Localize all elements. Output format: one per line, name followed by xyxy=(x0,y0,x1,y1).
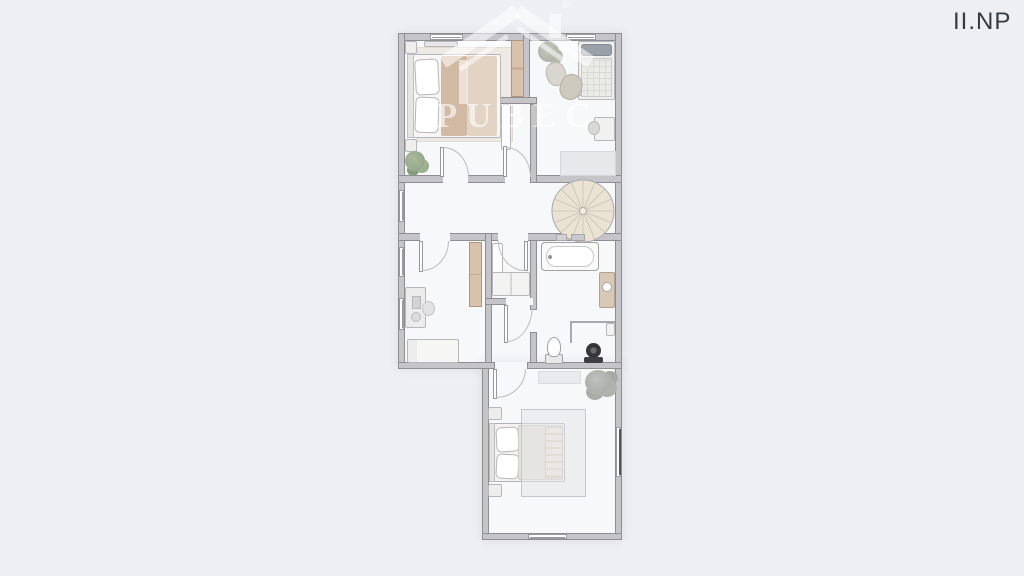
wall-right-upper xyxy=(615,33,622,368)
chair xyxy=(422,301,435,316)
pedestal-fan-base xyxy=(584,357,603,363)
bed-headboard xyxy=(489,423,495,482)
bed-blanket xyxy=(441,56,467,136)
bed-pillow xyxy=(414,97,439,134)
wall-bedroom4-left xyxy=(482,368,489,540)
registered-mark: ® xyxy=(562,0,569,11)
pedestal-fan-head xyxy=(586,343,601,358)
door-opening xyxy=(420,233,450,241)
wall-midsection-bottom-left xyxy=(398,362,495,369)
wall-divider-lower xyxy=(530,104,537,183)
wall-divider-jog xyxy=(500,97,537,104)
wardrobe xyxy=(511,40,524,97)
corner-cabinet xyxy=(606,323,615,336)
wall-midsection-bottom-right xyxy=(527,362,622,369)
window xyxy=(430,34,463,40)
sink-basin xyxy=(602,282,612,292)
toilet-bowl xyxy=(547,337,561,357)
window xyxy=(399,298,404,330)
door-opening xyxy=(498,233,528,241)
bed-blanket xyxy=(467,56,497,136)
bed-pillow xyxy=(414,58,440,95)
floor-level-label: II.NP xyxy=(953,8,1011,36)
floor-plan-page: { "page": { "background_color": "#edeff2… xyxy=(0,0,1024,576)
nightstand xyxy=(488,407,502,420)
door-opening xyxy=(506,298,533,305)
bed-headboard xyxy=(407,54,414,138)
rug xyxy=(560,151,616,176)
window xyxy=(616,427,621,477)
corner-rail xyxy=(570,321,572,343)
wall-bedroom-divider xyxy=(523,33,530,104)
window xyxy=(399,190,404,222)
bathtub xyxy=(541,242,599,271)
doormat xyxy=(538,371,581,384)
bed-pillow xyxy=(495,426,519,452)
window xyxy=(566,34,596,40)
wall-shelf xyxy=(424,41,458,47)
bed-blanket xyxy=(581,58,612,97)
plant xyxy=(585,370,611,394)
window xyxy=(528,534,567,539)
daybed xyxy=(407,339,459,363)
chair xyxy=(588,121,600,135)
nightstand xyxy=(488,484,502,497)
wall-fixture xyxy=(556,234,567,241)
nightstand xyxy=(405,41,417,54)
window xyxy=(399,247,404,277)
plant xyxy=(538,41,559,62)
bed-pillow xyxy=(495,453,519,479)
bench xyxy=(492,272,530,296)
plant xyxy=(405,151,425,171)
wardrobe xyxy=(469,242,482,307)
shelf-cabinet xyxy=(501,104,511,150)
bed-pillow xyxy=(581,44,612,56)
rug xyxy=(521,409,586,497)
wall-fixture xyxy=(571,234,585,241)
